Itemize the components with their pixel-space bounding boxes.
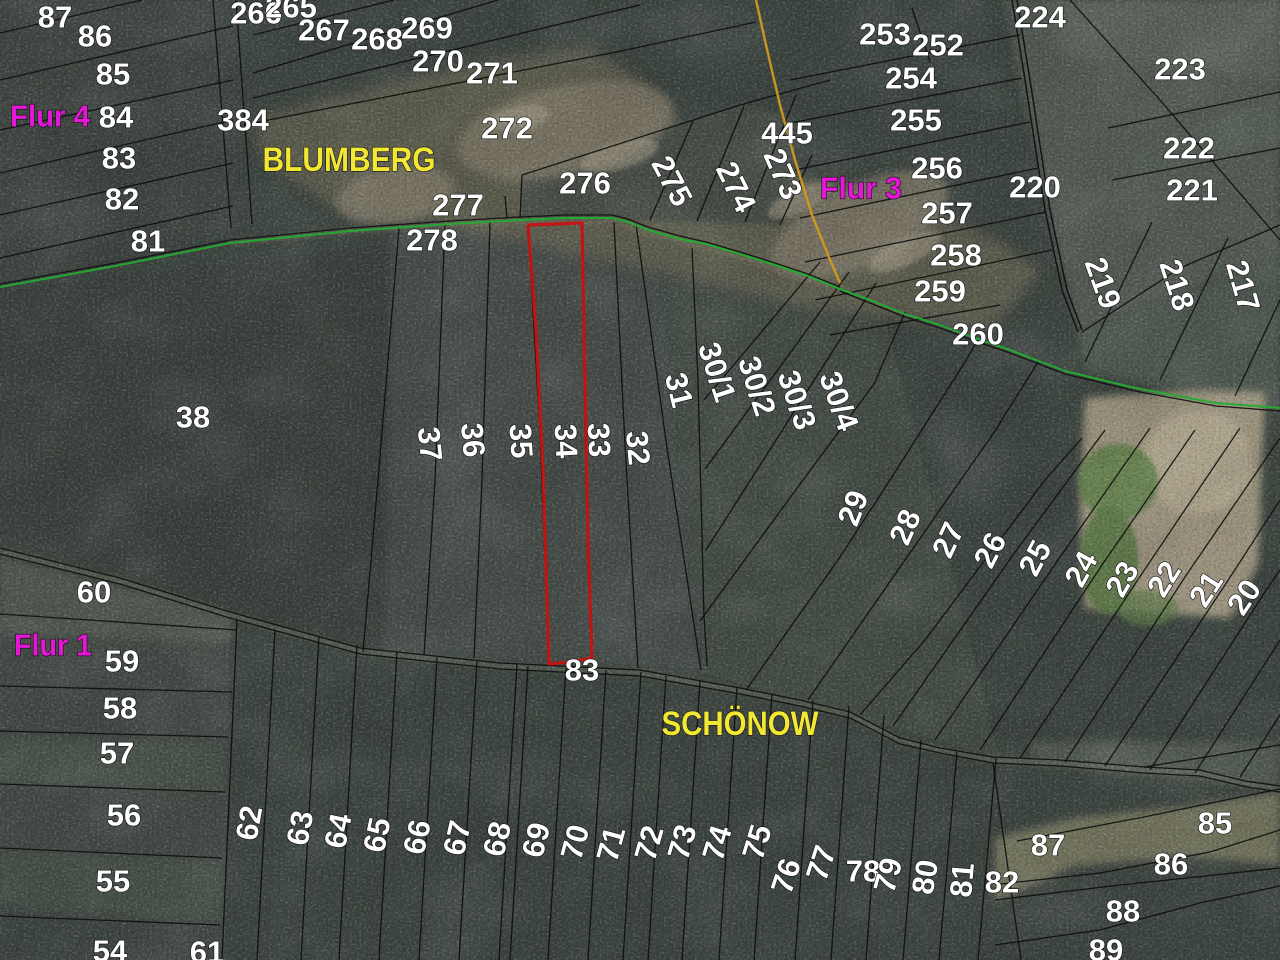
svg-text:SCHÖNOW: SCHÖNOW bbox=[662, 705, 820, 743]
svg-text:272: 272 bbox=[481, 111, 533, 146]
svg-text:82: 82 bbox=[985, 865, 1019, 900]
svg-text:84: 84 bbox=[99, 100, 134, 135]
svg-text:54: 54 bbox=[93, 934, 128, 960]
svg-text:276: 276 bbox=[559, 166, 611, 201]
svg-text:277: 277 bbox=[432, 188, 484, 223]
svg-text:Flur 4: Flur 4 bbox=[10, 99, 91, 134]
svg-text:259: 259 bbox=[914, 274, 966, 309]
svg-text:59: 59 bbox=[105, 644, 139, 679]
svg-text:224: 224 bbox=[1014, 0, 1066, 35]
svg-text:257: 257 bbox=[921, 196, 973, 231]
svg-text:255: 255 bbox=[890, 103, 942, 138]
svg-text:82: 82 bbox=[105, 182, 139, 217]
svg-text:89: 89 bbox=[1089, 933, 1123, 960]
svg-text:252: 252 bbox=[912, 28, 964, 63]
svg-text:445: 445 bbox=[761, 116, 813, 151]
svg-text:BLUMBERG: BLUMBERG bbox=[263, 141, 436, 179]
svg-text:253: 253 bbox=[859, 17, 911, 52]
svg-text:38: 38 bbox=[176, 400, 210, 435]
svg-text:271: 271 bbox=[466, 56, 518, 91]
svg-text:85: 85 bbox=[1198, 806, 1232, 841]
svg-text:65: 65 bbox=[356, 814, 397, 855]
svg-text:87: 87 bbox=[1031, 828, 1065, 863]
svg-text:32: 32 bbox=[619, 429, 657, 466]
svg-text:81: 81 bbox=[943, 861, 981, 898]
svg-text:87: 87 bbox=[38, 0, 72, 35]
svg-text:260: 260 bbox=[952, 317, 1004, 352]
svg-text:63: 63 bbox=[280, 808, 321, 849]
svg-text:34: 34 bbox=[548, 423, 585, 460]
svg-text:80: 80 bbox=[905, 857, 945, 897]
svg-text:221: 221 bbox=[1166, 173, 1218, 208]
svg-text:254: 254 bbox=[885, 61, 937, 96]
svg-text:58: 58 bbox=[103, 691, 137, 726]
svg-text:86: 86 bbox=[78, 19, 112, 54]
svg-text:222: 222 bbox=[1163, 131, 1215, 166]
svg-text:35: 35 bbox=[502, 423, 539, 460]
svg-text:278: 278 bbox=[406, 223, 458, 258]
svg-text:85: 85 bbox=[96, 57, 130, 92]
svg-text:83: 83 bbox=[565, 653, 599, 688]
svg-text:220: 220 bbox=[1009, 170, 1061, 205]
svg-text:36: 36 bbox=[454, 421, 492, 458]
svg-text:33: 33 bbox=[581, 422, 618, 458]
svg-text:88: 88 bbox=[1106, 894, 1140, 929]
svg-text:81: 81 bbox=[131, 224, 165, 259]
svg-text:62: 62 bbox=[229, 803, 269, 843]
svg-text:268: 268 bbox=[351, 22, 403, 57]
svg-text:Flur 3: Flur 3 bbox=[820, 171, 902, 206]
svg-text:267: 267 bbox=[298, 13, 350, 48]
svg-text:55: 55 bbox=[96, 864, 130, 899]
svg-text:83: 83 bbox=[102, 141, 136, 176]
svg-text:269: 269 bbox=[401, 11, 453, 46]
svg-text:384: 384 bbox=[217, 103, 269, 138]
svg-text:223: 223 bbox=[1154, 52, 1206, 87]
svg-text:258: 258 bbox=[930, 238, 982, 273]
svg-text:Flur 1: Flur 1 bbox=[14, 628, 92, 663]
svg-text:270: 270 bbox=[412, 44, 464, 79]
svg-text:60: 60 bbox=[77, 575, 111, 610]
svg-text:256: 256 bbox=[911, 151, 963, 186]
svg-text:86: 86 bbox=[1154, 847, 1188, 882]
svg-text:37: 37 bbox=[411, 425, 449, 463]
svg-text:56: 56 bbox=[107, 798, 141, 833]
svg-text:61: 61 bbox=[190, 935, 224, 960]
svg-text:57: 57 bbox=[100, 736, 134, 771]
